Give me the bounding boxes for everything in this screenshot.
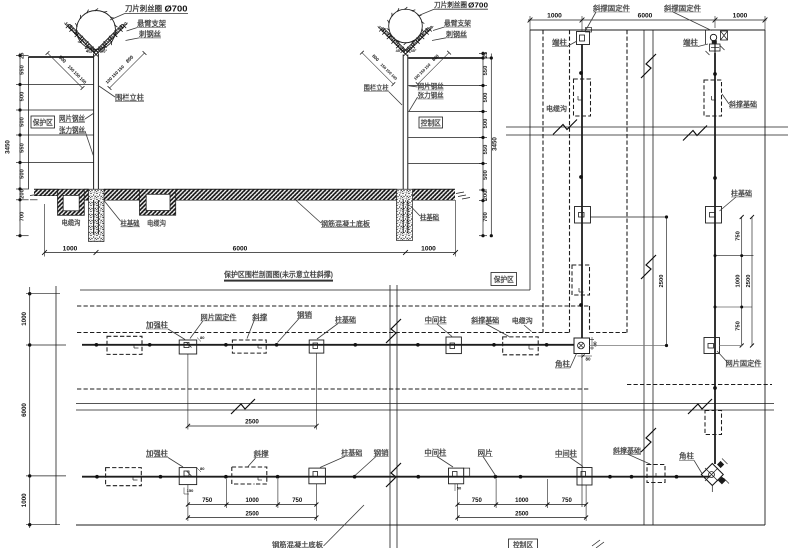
svg-text:中间柱: 中间柱 [555,449,578,458]
svg-text:500: 500 [483,170,489,180]
svg-text:斜撑固定件: 斜撑固定件 [663,4,701,13]
svg-text:45°: 45° [411,49,417,53]
svg-text:500: 500 [20,117,26,127]
svg-text:刀片刺丝圈: 刀片刺丝圈 [125,4,162,13]
svg-text:25: 25 [20,52,26,59]
svg-text:控制区: 控制区 [513,541,534,549]
svg-text:柱基础: 柱基础 [341,448,362,457]
svg-text:悬臂支架: 悬臂支架 [136,19,167,28]
svg-text:网片固定件: 网片固定件 [726,359,762,368]
svg-text:保护区: 保护区 [493,275,514,284]
svg-text:悬臂支架: 悬臂支架 [443,19,472,28]
svg-text:750: 750 [202,498,213,504]
svg-text:550: 550 [20,143,26,153]
svg-text:钢筋混凝土底板: 钢筋混凝土底板 [321,219,370,228]
svg-text:1000: 1000 [21,311,28,325]
svg-text:张力钢丝: 张力钢丝 [418,91,444,100]
svg-text:斜撑: 斜撑 [251,312,267,321]
svg-text:1000: 1000 [547,13,562,20]
svg-text:1000: 1000 [246,498,260,504]
svg-text:角柱: 角柱 [679,452,695,461]
svg-text:550: 550 [483,66,489,76]
svg-text:电缆沟: 电缆沟 [62,218,81,227]
svg-text:700: 700 [483,212,489,222]
svg-text:80: 80 [585,357,591,362]
svg-text:2500: 2500 [746,275,752,288]
svg-text:钢销: 钢销 [297,310,312,319]
svg-text:端柱: 端柱 [683,38,699,47]
svg-text:刀片刺丝圈: 刀片刺丝圈 [434,0,467,9]
svg-text:角柱: 角柱 [555,360,571,369]
svg-text:斜撑基础: 斜撑基础 [470,316,499,325]
svg-text:钢销: 钢销 [374,448,389,457]
svg-text:6000: 6000 [21,403,28,417]
svg-text:斜撑: 斜撑 [253,449,269,458]
svg-text:围栏立柱: 围栏立柱 [364,83,389,92]
svg-text:柱基础: 柱基础 [335,315,356,324]
svg-text:1000: 1000 [735,275,741,288]
svg-text:550: 550 [20,65,26,75]
svg-text:45°: 45° [86,49,93,54]
svg-text:柱基础: 柱基础 [121,218,140,227]
svg-text:1000: 1000 [421,245,436,252]
svg-text:柱基础: 柱基础 [731,189,752,198]
svg-text:柱基础: 柱基础 [420,212,439,221]
svg-text:80: 80 [200,335,205,340]
svg-text:200: 200 [483,191,489,201]
svg-text:200: 200 [20,189,26,199]
svg-text:中间柱: 中间柱 [424,448,447,457]
svg-text:刺钢丝: 刺钢丝 [445,29,467,38]
svg-text:刺钢丝: 刺钢丝 [138,29,162,38]
svg-text:网片钢丝: 网片钢丝 [418,82,444,91]
svg-text:网片固定件: 网片固定件 [201,312,237,321]
svg-text:中间柱: 中间柱 [425,316,448,325]
svg-text:Ø700: Ø700 [165,5,189,14]
svg-text:斜撑固定件: 斜撑固定件 [592,4,630,13]
svg-text:750: 750 [735,321,741,331]
svg-text:750: 750 [472,498,483,504]
svg-text:加强柱: 加强柱 [145,321,169,330]
svg-text:3450: 3450 [492,137,499,151]
svg-text:80: 80 [200,466,205,471]
svg-text:1000: 1000 [515,498,529,504]
svg-text:Ø700: Ø700 [468,0,488,9]
svg-text:500: 500 [483,93,489,103]
svg-text:2500: 2500 [246,511,260,517]
svg-text:6000: 6000 [638,13,653,20]
svg-text:3450: 3450 [5,140,12,154]
svg-text:电缆沟: 电缆沟 [546,104,567,113]
svg-text:45°: 45° [396,49,402,53]
svg-text:6000: 6000 [233,245,248,252]
svg-text:750: 750 [735,231,741,241]
svg-text:550: 550 [483,145,489,155]
svg-text:1000: 1000 [21,493,28,507]
svg-text:端柱: 端柱 [552,38,568,47]
svg-text:网片: 网片 [478,448,493,457]
svg-text:2500: 2500 [515,511,529,517]
svg-text:25: 25 [483,51,489,58]
svg-text:2500: 2500 [659,275,665,288]
svg-text:电缆沟: 电缆沟 [147,218,166,227]
svg-text:500: 500 [20,169,26,179]
svg-text:保护区: 保护区 [32,118,53,127]
svg-text:750: 750 [292,498,303,504]
svg-text:700: 700 [20,212,26,222]
svg-text:500: 500 [20,92,26,102]
svg-text:张力钢丝: 张力钢丝 [59,125,86,134]
svg-text:1000: 1000 [733,13,748,20]
svg-text:1000: 1000 [63,245,78,252]
svg-text:斜撑基础: 斜撑基础 [728,100,757,109]
svg-text:围栏立柱: 围栏立柱 [115,93,145,102]
svg-text:保护区围栏剖面图(未示意立柱斜撑): 保护区围栏剖面图(未示意立柱斜撑) [223,269,333,279]
svg-text:控制区: 控制区 [421,118,442,127]
svg-text:500: 500 [483,119,489,129]
svg-text:网片钢丝: 网片钢丝 [59,114,86,123]
svg-text:电缆沟: 电缆沟 [512,316,533,325]
svg-text:斜撑基础: 斜撑基础 [612,446,641,455]
svg-text:钢筋混凝土底板: 钢筋混凝土底板 [272,540,323,548]
svg-text:加强柱: 加强柱 [145,449,169,458]
svg-text:45°: 45° [101,49,108,54]
svg-text:2500: 2500 [245,419,259,426]
svg-text:750: 750 [562,498,573,504]
